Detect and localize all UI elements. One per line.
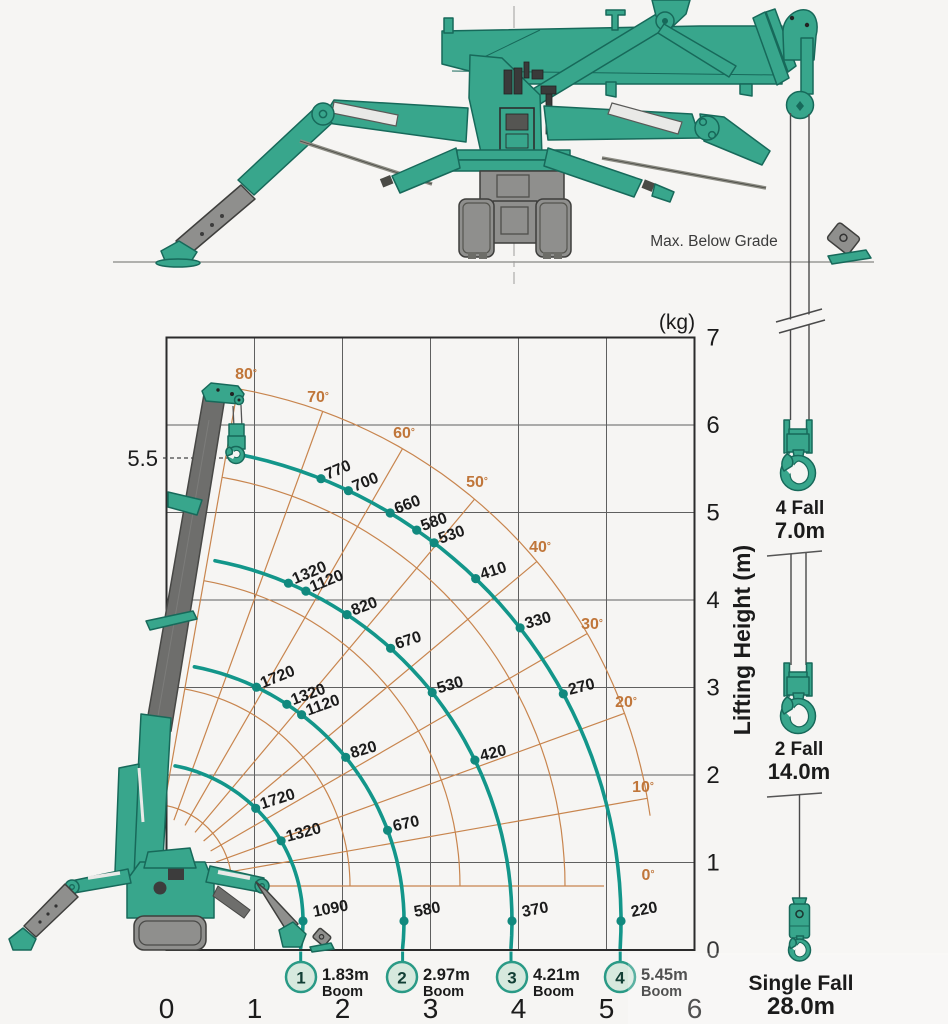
svg-text:1.83m: 1.83m bbox=[322, 966, 369, 984]
svg-text:4: 4 bbox=[511, 993, 527, 1024]
svg-text:2 Fall: 2 Fall bbox=[775, 739, 824, 760]
svg-text:14.0m: 14.0m bbox=[768, 759, 830, 784]
svg-text:1: 1 bbox=[706, 850, 719, 877]
svg-text:5.5: 5.5 bbox=[127, 446, 158, 471]
svg-text:2.97m: 2.97m bbox=[423, 966, 470, 984]
svg-text:28.0m: 28.0m bbox=[767, 993, 835, 1020]
svg-text:1: 1 bbox=[296, 969, 305, 988]
svg-text:Boom: Boom bbox=[322, 984, 363, 1000]
svg-text:Boom: Boom bbox=[533, 984, 574, 1000]
svg-text:Lifting Height (m): Lifting Height (m) bbox=[729, 545, 755, 735]
svg-text:5: 5 bbox=[706, 500, 719, 527]
svg-text:4: 4 bbox=[615, 969, 625, 988]
svg-text:4 Fall: 4 Fall bbox=[776, 498, 825, 519]
svg-text:5: 5 bbox=[599, 993, 615, 1024]
svg-text:Boom: Boom bbox=[423, 984, 464, 1000]
svg-text:2: 2 bbox=[706, 762, 719, 789]
svg-text:Single Fall: Single Fall bbox=[748, 972, 853, 995]
svg-text:1: 1 bbox=[247, 993, 263, 1024]
svg-text:3: 3 bbox=[507, 969, 516, 988]
svg-text:Max. Below Grade: Max. Below Grade bbox=[650, 233, 778, 250]
svg-text:4.21m: 4.21m bbox=[533, 966, 580, 984]
svg-text:6: 6 bbox=[706, 412, 719, 439]
svg-text:7: 7 bbox=[706, 325, 719, 352]
svg-text:(kg): (kg) bbox=[659, 311, 695, 334]
svg-text:7.0m: 7.0m bbox=[775, 518, 825, 543]
svg-text:3: 3 bbox=[706, 675, 719, 702]
svg-text:4: 4 bbox=[706, 587, 719, 614]
svg-text:2: 2 bbox=[397, 969, 406, 988]
svg-text:0: 0 bbox=[159, 993, 175, 1024]
